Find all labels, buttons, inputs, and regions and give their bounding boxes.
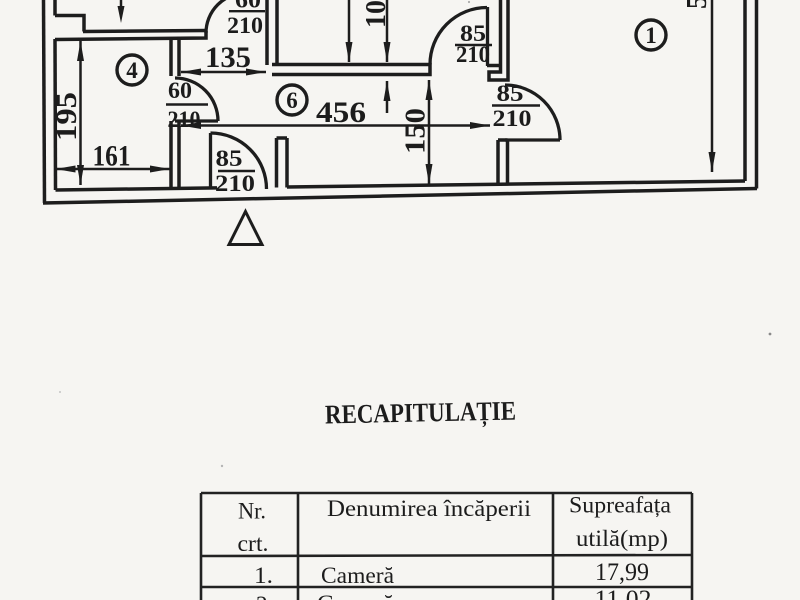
svg-text:456: 456 (316, 96, 366, 129)
svg-text:Supreafața: Supreafața (569, 493, 671, 518)
svg-text:85: 85 (216, 146, 243, 171)
svg-text:161: 161 (93, 140, 131, 173)
svg-text:210: 210 (493, 106, 532, 131)
svg-text:135: 135 (205, 41, 251, 74)
svg-text:4: 4 (126, 58, 138, 83)
svg-text:210: 210 (227, 13, 263, 38)
svg-text:195: 195 (50, 92, 83, 141)
svg-text:150: 150 (401, 108, 432, 154)
svg-text:Cameră: Cameră (317, 591, 394, 600)
svg-text:RECAPITULAȚIE: RECAPITULAȚIE (325, 396, 517, 432)
svg-text:17,99: 17,99 (595, 559, 649, 586)
svg-text:530: 530 (682, 0, 713, 9)
svg-text:1.: 1. (254, 563, 273, 588)
svg-text:100: 100 (361, 0, 392, 28)
svg-text:utilă(mp): utilă(mp) (576, 526, 668, 551)
svg-text:2.: 2. (256, 592, 273, 600)
svg-text:crt.: crt. (238, 531, 269, 556)
svg-text:Cameră: Cameră (321, 563, 394, 588)
svg-text:210: 210 (168, 107, 201, 132)
svg-text:Denumirea încăperii: Denumirea încăperii (327, 496, 531, 521)
svg-text:210: 210 (456, 42, 490, 67)
svg-text:85: 85 (497, 81, 524, 106)
svg-text:210: 210 (215, 171, 255, 196)
svg-text:60: 60 (168, 78, 192, 103)
svg-text:11,02: 11,02 (595, 586, 652, 600)
svg-text:6: 6 (286, 88, 298, 113)
svg-text:1: 1 (645, 23, 657, 48)
svg-text:Nr.: Nr. (238, 499, 266, 524)
